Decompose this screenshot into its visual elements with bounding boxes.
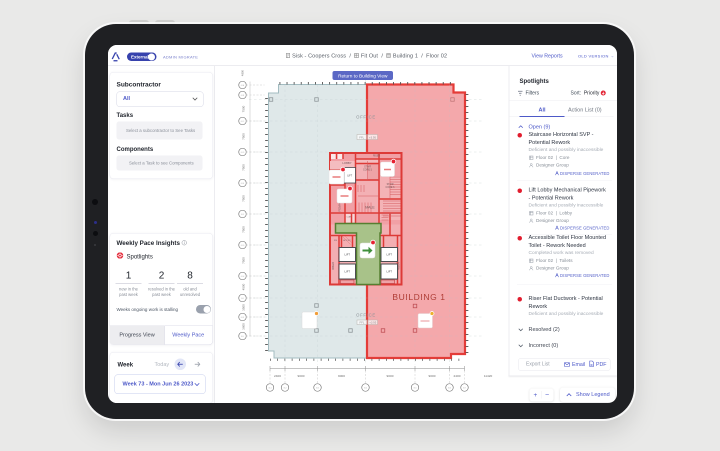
svg-text:GLG: GLG: [240, 245, 244, 247]
svg-text:RISER: RISER: [372, 156, 379, 158]
svg-text:LIFT: LIFT: [344, 270, 350, 274]
svg-text:7500: 7500: [241, 257, 245, 264]
svg-text:3500: 3500: [241, 304, 245, 311]
svg-text:FFL: FFL: [359, 321, 364, 325]
svg-text:RIS: RIS: [334, 240, 338, 242]
svg-text:4500: 4500: [241, 283, 245, 290]
svg-text:CORE 5: CORE 5: [363, 169, 373, 172]
svg-text:LIFT: LIFT: [347, 176, 352, 178]
svg-text:9000: 9000: [338, 374, 345, 378]
svg-text:GL3: GL3: [315, 388, 318, 390]
svg-text:7500: 7500: [241, 105, 245, 112]
svg-text:MALE: MALE: [365, 206, 375, 210]
svg-text:GL4: GL4: [363, 388, 366, 390]
svg-text:GL1: GL1: [268, 388, 271, 390]
svg-text:GLF: GLF: [240, 214, 243, 216]
svg-text:OFFICE: OFFICE: [356, 115, 376, 120]
svg-text:7500: 7500: [241, 164, 245, 171]
svg-text:LIFT: LIFT: [386, 253, 392, 257]
svg-text:ACC WC: ACC WC: [343, 239, 351, 242]
svg-text:GL6: GL6: [447, 388, 450, 390]
svg-text:GL7: GL7: [462, 388, 465, 390]
svg-text:7500: 7500: [241, 195, 245, 202]
svg-text:LOBBY: LOBBY: [342, 161, 351, 165]
svg-text:9000: 9000: [297, 374, 304, 378]
svg-text:RISER: RISER: [332, 262, 335, 270]
svg-text:GLD: GLD: [240, 152, 244, 154]
svg-text:GLJ: GLJ: [240, 298, 243, 300]
svg-text:3600: 3600: [241, 323, 245, 330]
svg-text:FFL: FFL: [359, 135, 364, 139]
svg-text:7500: 7500: [241, 133, 245, 140]
svg-text:LIFT: LIFT: [344, 253, 350, 257]
svg-text:+3.95: +3.95: [369, 135, 376, 139]
svg-text:GLE: GLE: [240, 183, 244, 185]
svg-text:GLL: GLL: [240, 336, 243, 338]
svg-text:4800: 4800: [240, 69, 244, 76]
svg-text:9000: 9000: [386, 374, 393, 378]
svg-text:9000: 9000: [428, 374, 435, 378]
svg-text:GLC: GLC: [240, 121, 244, 123]
svg-text:CORE 6: CORE 6: [385, 186, 395, 189]
svg-text:GL5: GL5: [413, 388, 416, 390]
svg-text:2400: 2400: [453, 374, 460, 378]
svg-text:GLH: GLH: [240, 276, 244, 278]
svg-text:7500: 7500: [241, 226, 245, 233]
svg-text:GLA: GLA: [240, 84, 244, 87]
svg-text:GLB: GLB: [240, 95, 244, 97]
svg-text:LIFT: LIFT: [386, 270, 392, 274]
svg-text:+3.95: +3.95: [369, 321, 376, 325]
svg-text:2400: 2400: [274, 374, 281, 378]
svg-text:CLNR: CLNR: [346, 217, 352, 219]
svg-text:11420: 11420: [483, 374, 492, 378]
svg-text:GLK: GLK: [240, 317, 244, 319]
svg-text:BUILDING 1: BUILDING 1: [392, 292, 445, 302]
svg-text:GL2: GL2: [283, 388, 286, 390]
